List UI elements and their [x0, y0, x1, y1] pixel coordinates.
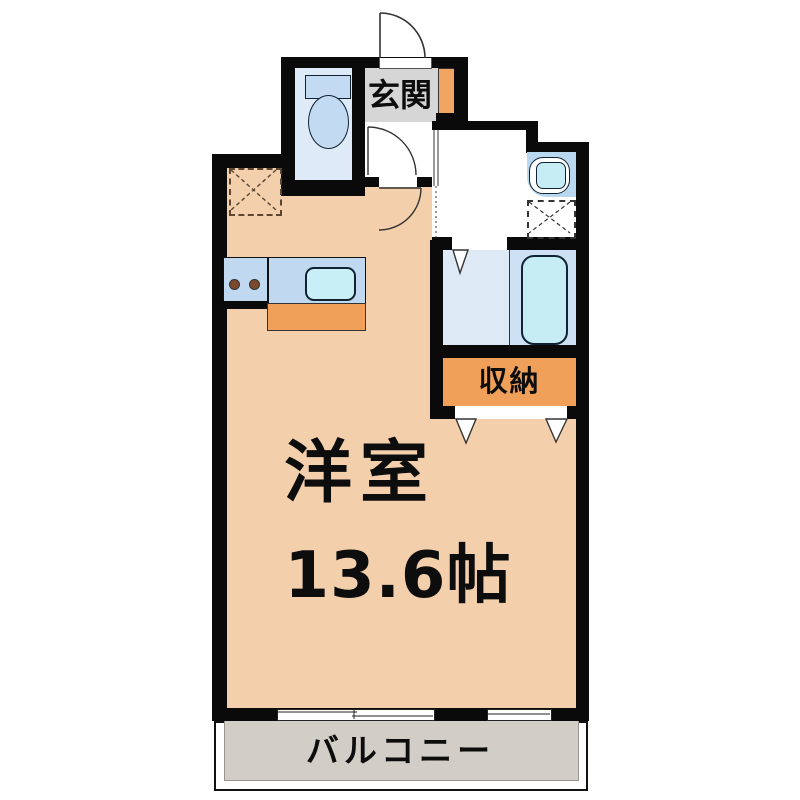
floor-plan: 玄関 収納 洋室 13.6帖 バルコニー	[0, 0, 800, 800]
wall-hall-bottom-right	[417, 177, 432, 187]
wall-toilet-right	[352, 68, 365, 183]
wall-kitchen-stub	[223, 301, 267, 309]
wall-hall-bottom-left	[358, 177, 379, 187]
entrance-label: 玄関	[365, 70, 435, 120]
balcony-label: バルコニー	[224, 724, 577, 776]
kitchen-sink-icon	[305, 267, 356, 301]
bathroom-door-opening	[452, 237, 507, 250]
window-small	[487, 709, 552, 721]
window-large	[277, 709, 435, 721]
wall-entrance-right	[454, 57, 468, 130]
wall-top	[281, 57, 468, 68]
wall-right	[576, 142, 589, 721]
refrigerator-space	[229, 168, 282, 216]
entrance-door-icon	[380, 13, 425, 58]
washbasin-bowl-icon	[536, 162, 566, 189]
kitchen-counter-divider	[267, 257, 269, 303]
kitchen-base	[267, 303, 366, 331]
wall-toilet-bottom	[281, 180, 365, 196]
wall-bathroom-bottom	[430, 345, 576, 358]
bathtub-icon	[521, 255, 568, 345]
wall-mid-vertical	[430, 240, 443, 419]
toilet-bowl-icon	[308, 95, 349, 149]
main-room-size: 13.6帖	[282, 532, 514, 620]
entrance-door-opening	[379, 58, 432, 69]
storage-label: 収納	[443, 358, 576, 404]
stove-burner-icon	[249, 279, 260, 290]
main-room-label: 洋室	[275, 432, 445, 516]
wall-toilet-left	[281, 57, 295, 196]
wall-left	[212, 154, 227, 721]
stove-burner-icon	[229, 279, 240, 290]
hallway-door-opening	[379, 177, 417, 187]
storage-door-opening	[455, 406, 567, 419]
wall-washroom-top	[432, 121, 538, 130]
washer-space	[527, 200, 576, 239]
hallway-floor	[365, 122, 432, 177]
